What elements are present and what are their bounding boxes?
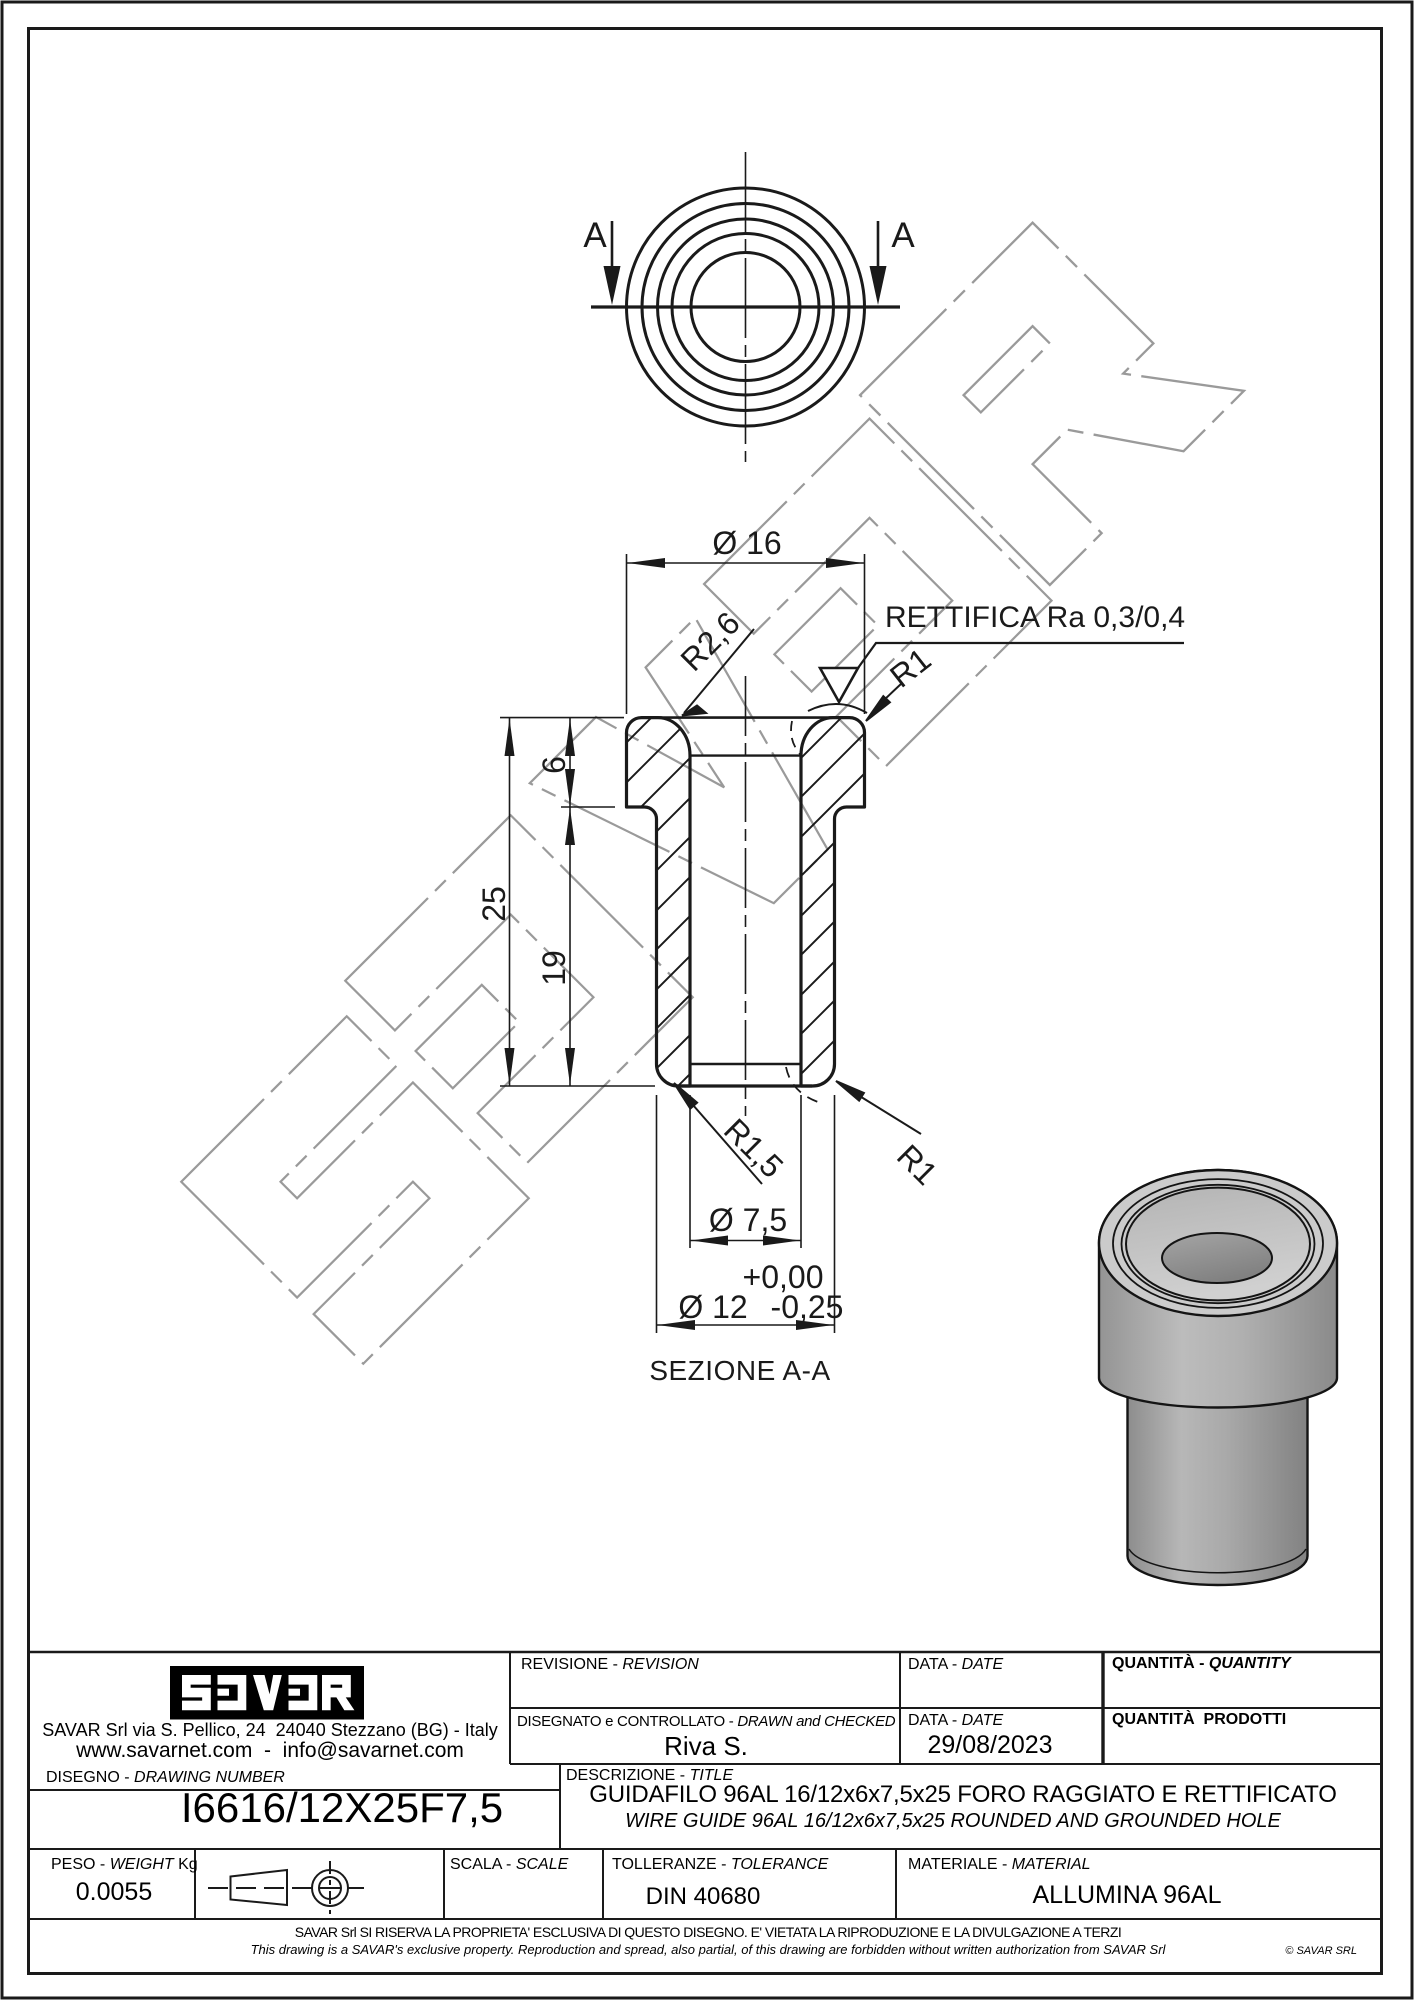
svg-text:Ø 12: Ø 12 xyxy=(678,1289,747,1325)
svg-text:Ø 7,5: Ø 7,5 xyxy=(709,1202,787,1238)
svg-text:A: A xyxy=(583,216,607,255)
svg-text:19: 19 xyxy=(536,950,572,986)
svg-text:-0,25: -0,25 xyxy=(771,1289,844,1325)
svg-text:RETTIFICA Ra 0,3/0,4: RETTIFICA Ra 0,3/0,4 xyxy=(885,601,1185,634)
svg-text:Ø 16: Ø 16 xyxy=(712,525,781,561)
svg-text:A: A xyxy=(891,216,915,255)
svg-text:SEZIONE A-A: SEZIONE A-A xyxy=(649,1355,830,1386)
svg-text:6: 6 xyxy=(536,756,572,774)
svg-text:R1: R1 xyxy=(883,641,937,695)
svg-text:25: 25 xyxy=(476,886,512,922)
svg-text:R1: R1 xyxy=(890,1137,944,1191)
